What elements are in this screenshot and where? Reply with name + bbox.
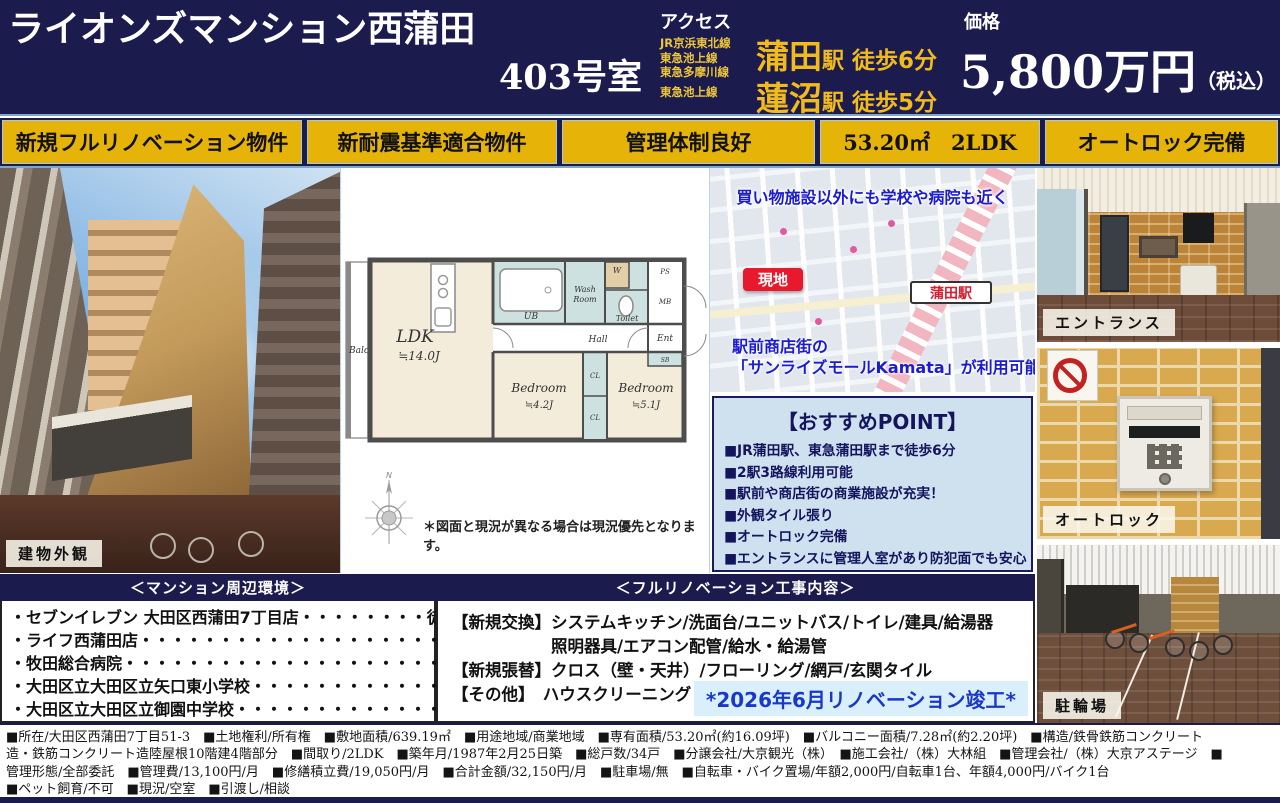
bedroom1-size: ≒4.2J xyxy=(525,400,554,411)
footer-bottom-bar xyxy=(0,797,1280,803)
map-marker xyxy=(780,228,787,235)
bedroom2-size: ≒5.1J xyxy=(632,400,661,411)
door-frame xyxy=(1261,348,1280,539)
site-location-badge: 現地 xyxy=(743,268,803,291)
footer-line: 管理形態/全部委託 ■管理費/13,100円/月 ■修繕積立費/19,050円/… xyxy=(6,764,1274,781)
flyer-page: ライオンズマンション西蒲田 403号室 アクセス JR京浜東北線 東急池上線 東… xyxy=(0,0,1280,803)
point-item: ■外観タイル張り xyxy=(724,506,1031,528)
sb-label: SB xyxy=(661,357,670,364)
access-label: アクセス xyxy=(660,8,731,34)
bedroom2-label: Bedroom xyxy=(617,381,673,395)
dark-opening xyxy=(1066,585,1139,639)
bicycle-wheel xyxy=(1129,633,1149,653)
entrance-door xyxy=(1100,215,1129,292)
bicycle-wheel xyxy=(1165,637,1185,657)
bicycle-wheel xyxy=(1213,635,1233,655)
point-item: ■オートロック完備 xyxy=(724,527,1031,549)
renovation-header: ＜フルリノベーション工事内容＞ xyxy=(436,574,1035,601)
map-marker xyxy=(888,220,895,227)
point-item: ■駅前や商店街の商業施設が充実！ xyxy=(724,484,1031,506)
map-caption-line2: 「サンライズモールKamata」が利用可能！ xyxy=(732,357,1035,378)
bicycle-wheel xyxy=(150,533,176,559)
hall-label: Hall xyxy=(588,335,608,345)
surroundings-item: ・大田区立大田区立御園中学校・・・・・・・・・・・・・徒歩3分 xyxy=(10,698,434,721)
renovation-line: 照明器具/エアコン配管/給水・給湯管 xyxy=(452,635,1033,659)
bicycle-wheel xyxy=(238,531,264,557)
autolock-photo: オートロック xyxy=(1037,348,1280,539)
rail-lines: JR京浜東北線 東急池上線 東急多摩川線 東急池上線 xyxy=(660,36,731,99)
ldk-size: ≒14.0J xyxy=(398,349,441,363)
badge-earthquake: 新耐震基準適合物件 xyxy=(307,120,557,164)
room-number: 403号室 xyxy=(8,54,656,102)
price: 5,800万円（税込） xyxy=(960,36,1276,102)
ub-label: UB xyxy=(524,312,539,322)
surroundings-list: ・セブンイレブン 大田区西蒲田7丁目店・・・・・・・・徒歩1分 ・ライフ西蒲田店… xyxy=(0,601,436,723)
price-label: 価格 xyxy=(964,8,1000,34)
station-access-2: 蓮沼駅徒歩5分 xyxy=(756,72,937,120)
intercom-panel xyxy=(1117,396,1212,492)
rail-line: 東急池上線 xyxy=(660,85,731,100)
surroundings-item: ・大田区立大田区立矢口東小学校・・・・・・・・・・・・徒歩9分 xyxy=(10,675,434,698)
bicycle-parking-photo: 駐輪場 xyxy=(1037,545,1280,725)
intercom-keypad xyxy=(1147,444,1183,469)
notice-board xyxy=(1183,213,1215,243)
point-item: ■2駅3路線利用可能 xyxy=(724,463,1031,485)
recommend-point-box: 【おすすめPOINT】 ■JR蒲田駅、東急蒲田駅まで徒歩6分 ■2駅3路線利用可… xyxy=(712,396,1033,572)
manager-window xyxy=(1139,236,1178,259)
prohibition-icon xyxy=(1053,358,1087,393)
washroom-label-2: Room xyxy=(572,295,597,304)
rail-line: 東急池上線 xyxy=(660,51,731,66)
surroundings-item: ・牧田総合病院・・・・・・・・・・・・・・・・・・・・・・・・・・徒歩7分 xyxy=(10,652,434,675)
surroundings-item: ・ライフ西蒲田店・・・・・・・・・・・・・・・・・・・・・・・・・徒歩1分 xyxy=(10,629,434,652)
property-details-footer: ■所在/大田区西蒲田7丁目51-3 ■土地権利/所有権 ■敷地面積/639.19… xyxy=(0,723,1280,803)
property-name: ライオンズマンション西蒲田 xyxy=(8,4,656,54)
autolock-photo-label: オートロック xyxy=(1043,506,1175,533)
rail-line: JR京浜東北線 xyxy=(660,36,731,51)
ldk-label: LDK xyxy=(395,327,435,347)
badge-renovation: 新規フルリノベーション物件 xyxy=(2,120,302,164)
property-title: ライオンズマンション西蒲田 403号室 xyxy=(8,4,656,102)
exterior-photo: 建物外観 xyxy=(0,168,340,573)
area-map: 買い物施設以外にも学校や病院も近く 現地 蒲田駅 駅前商店街の 「サンライズモー… xyxy=(710,168,1035,392)
bedroom1-label: Bedroom xyxy=(510,381,566,395)
ps-label: PS xyxy=(659,268,670,276)
glass-wall xyxy=(1037,189,1088,297)
bicycle-photo-label: 駐輪場 xyxy=(1043,692,1121,719)
cl2-label: CL xyxy=(590,414,600,422)
price-tax-note: （税込） xyxy=(1196,69,1276,93)
bicycle-wheel xyxy=(1189,641,1209,661)
rail-line: 東急多摩川線 xyxy=(660,65,731,80)
station-access-1: 蒲田駅徒歩6分 xyxy=(756,30,937,78)
point-item: ■エントランスに管理人室があり防犯面でも安心 xyxy=(724,549,1031,571)
badge-size-layout: 53.20㎡ 2LDK xyxy=(820,120,1040,164)
renovation-line: 【新規張替】クロス（壁・天井）/フローリング/網戸/玄関タイル xyxy=(452,659,1033,683)
footer-line: ■所在/大田区西蒲田7丁目51-3 ■土地権利/所有権 ■敷地面積/639.19… xyxy=(6,729,1274,746)
price-value: 5,800万円 xyxy=(960,45,1196,99)
surroundings-item: ・セブンイレブン 大田区西蒲田7丁目店・・・・・・・・徒歩1分 xyxy=(10,606,434,629)
no-soliciting-sign xyxy=(1047,350,1098,402)
badge-management: 管理体制良好 xyxy=(562,120,815,164)
intercom-header xyxy=(1127,406,1202,420)
renovation-completion-note: *2026年6月リノベーション竣工* xyxy=(694,681,1028,716)
cl1-label: CL xyxy=(590,372,600,380)
compass-icon: N xyxy=(359,468,419,548)
ent-label: Ent xyxy=(656,334,673,344)
compass-north-label: N xyxy=(386,471,392,480)
renovation-details: 【新規交換】システムキッチン/洗面台/ユニットバス/トイレ/建具/給湯器 照明器… xyxy=(436,601,1035,723)
floorplan-panel: Balcony xyxy=(340,168,710,573)
map-caption-line1: 駅前商店街の xyxy=(732,336,1035,357)
cabinet xyxy=(1180,265,1216,296)
point-item: ■JR蒲田駅、東急蒲田駅まで徒歩6分 xyxy=(724,441,1031,463)
floorplan-disclaimer: ＊図面と現況が異なる場合は現況優先となります。 xyxy=(423,516,709,554)
floorplan-drawing: Balcony xyxy=(343,256,709,446)
toilet-label: Toilet xyxy=(616,314,639,323)
kamata-station-badge: 蒲田駅 xyxy=(910,281,992,304)
exterior-photo-label: 建物外観 xyxy=(6,540,102,567)
intercom-screen xyxy=(1129,426,1200,439)
w-closet-label: W xyxy=(613,266,622,275)
renovation-line: 【新規交換】システムキッチン/洗面台/ユニットバス/トイレ/建具/給湯器 xyxy=(452,611,1033,635)
badge-autolock: オートロック完備 xyxy=(1045,120,1278,164)
map-marker xyxy=(850,246,857,253)
intercom-call-button xyxy=(1159,473,1171,485)
surroundings-section: ＜マンション周辺環境＞ ・セブンイレブン 大田区西蒲田7丁目店・・・・・・・・徒… xyxy=(0,574,436,723)
footer-line: 造・鉄筋コンクリート造陸屋根10階建4階部分 ■間取り/2LDK ■築年月/19… xyxy=(6,746,1274,763)
recommend-point-title: 【おすすめPOINT】 xyxy=(714,406,1031,435)
washroom-label-1: Wash xyxy=(574,285,596,294)
map-headline: 買い物施設以外にも学校や病院も近く xyxy=(710,184,1035,208)
surroundings-header: ＜マンション周辺環境＞ xyxy=(0,574,436,601)
feature-badges: 新規フルリノベーション物件 新耐震基準適合物件 管理体制良好 53.20㎡ 2L… xyxy=(0,118,1280,168)
entrance-photo: エントランス xyxy=(1037,168,1280,342)
side-door xyxy=(1244,203,1280,297)
header: ライオンズマンション西蒲田 403号室 アクセス JR京浜東北線 東急池上線 東… xyxy=(0,0,1280,116)
map-caption: 駅前商店街の 「サンライズモールKamata」が利用可能！ xyxy=(732,336,1035,378)
map-marker xyxy=(815,318,822,325)
mb-label: MB xyxy=(658,298,671,306)
entrance-photo-label: エントランス xyxy=(1043,309,1175,336)
bicycle-wheel xyxy=(188,537,214,563)
renovation-section: ＜フルリノベーション工事内容＞ 【新規交換】システムキッチン/洗面台/ユニットバ… xyxy=(436,574,1035,723)
footer-line: ■ペット飼育/不可 ■現況/空室 ■引渡し/相談 xyxy=(6,781,1274,798)
